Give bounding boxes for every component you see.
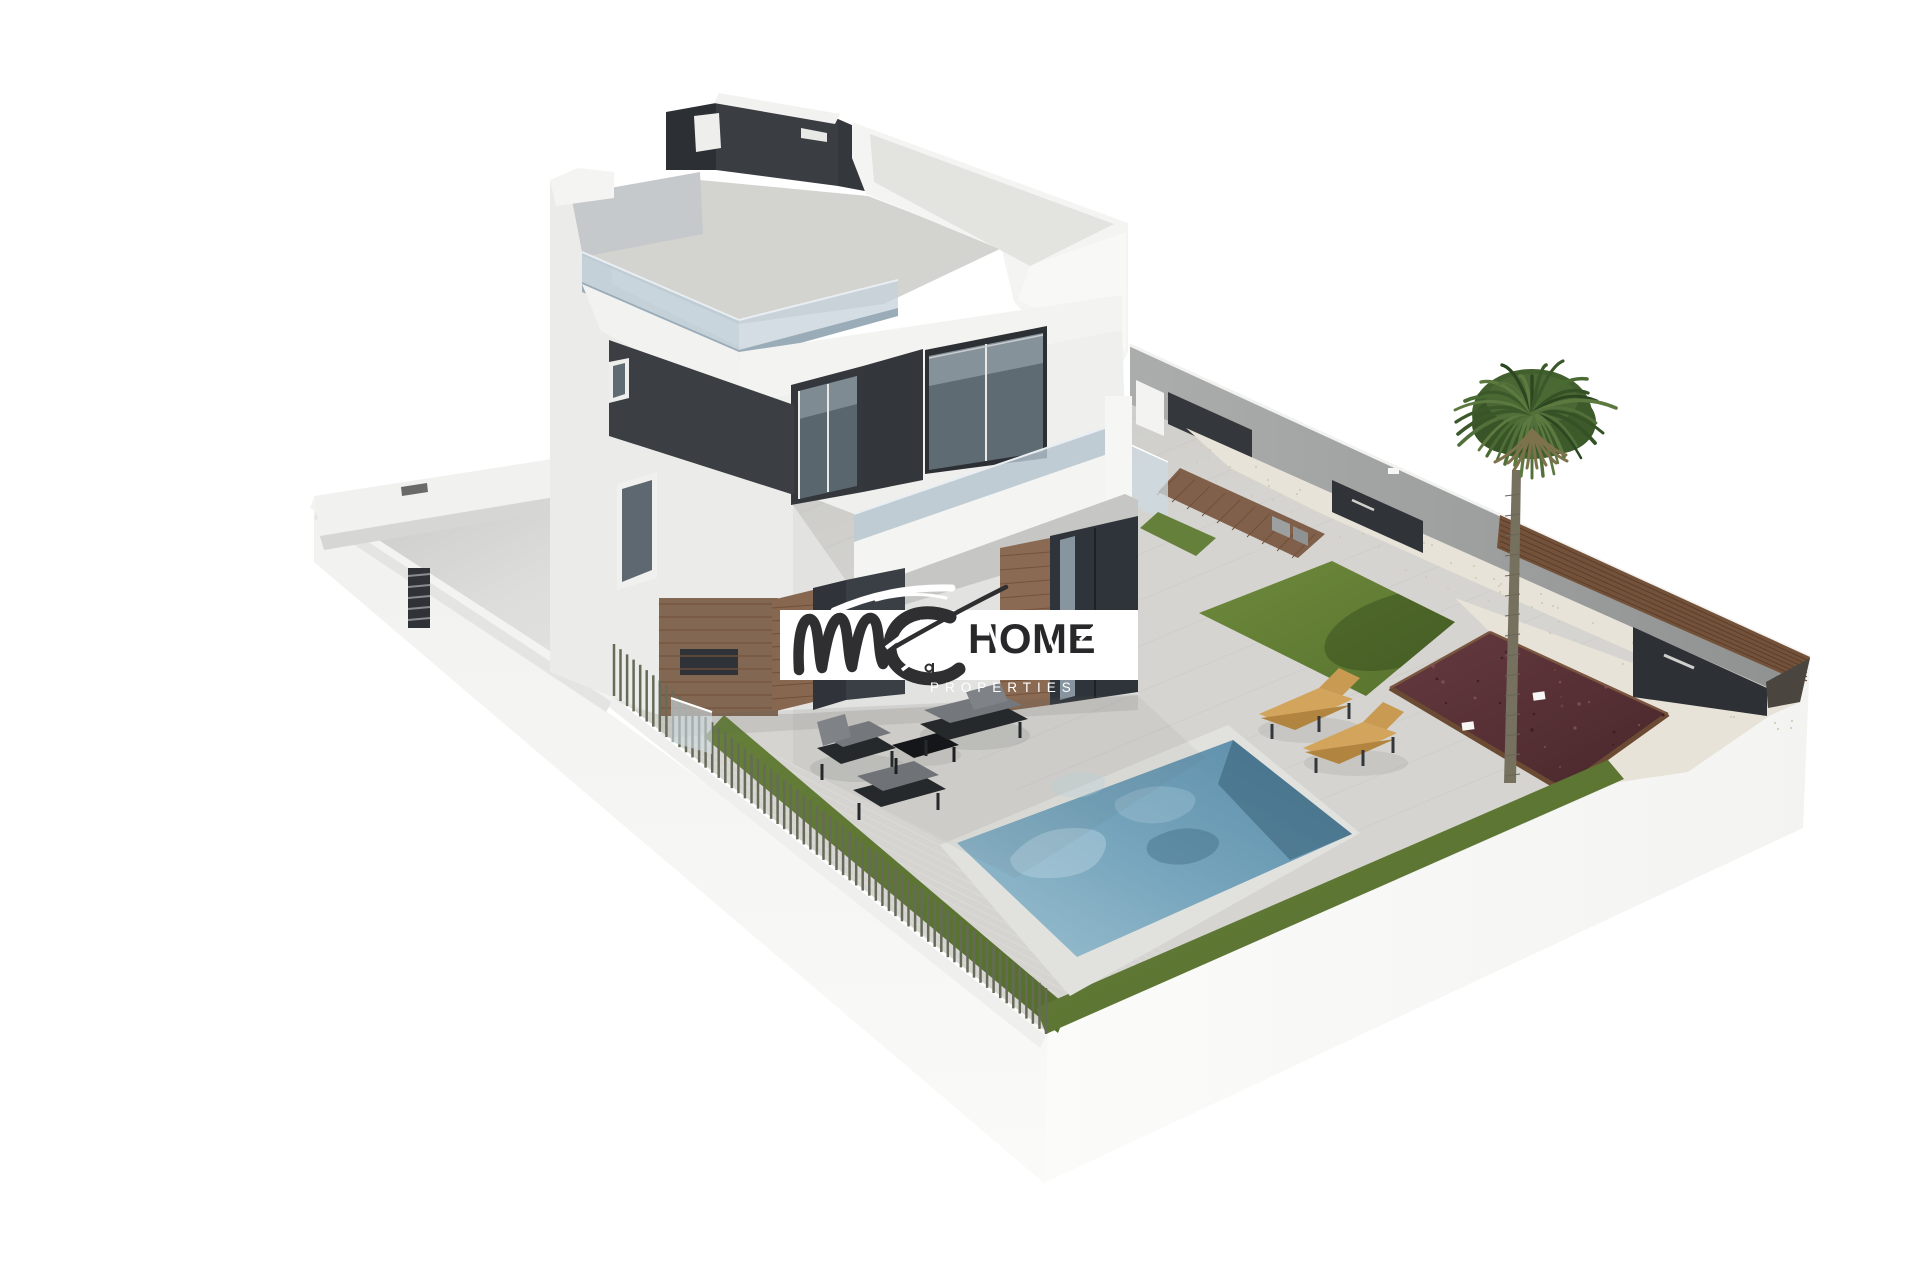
- svg-text:PROPERTIES: PROPERTIES: [930, 680, 1077, 695]
- svg-text:HOME: HOME: [968, 615, 1096, 662]
